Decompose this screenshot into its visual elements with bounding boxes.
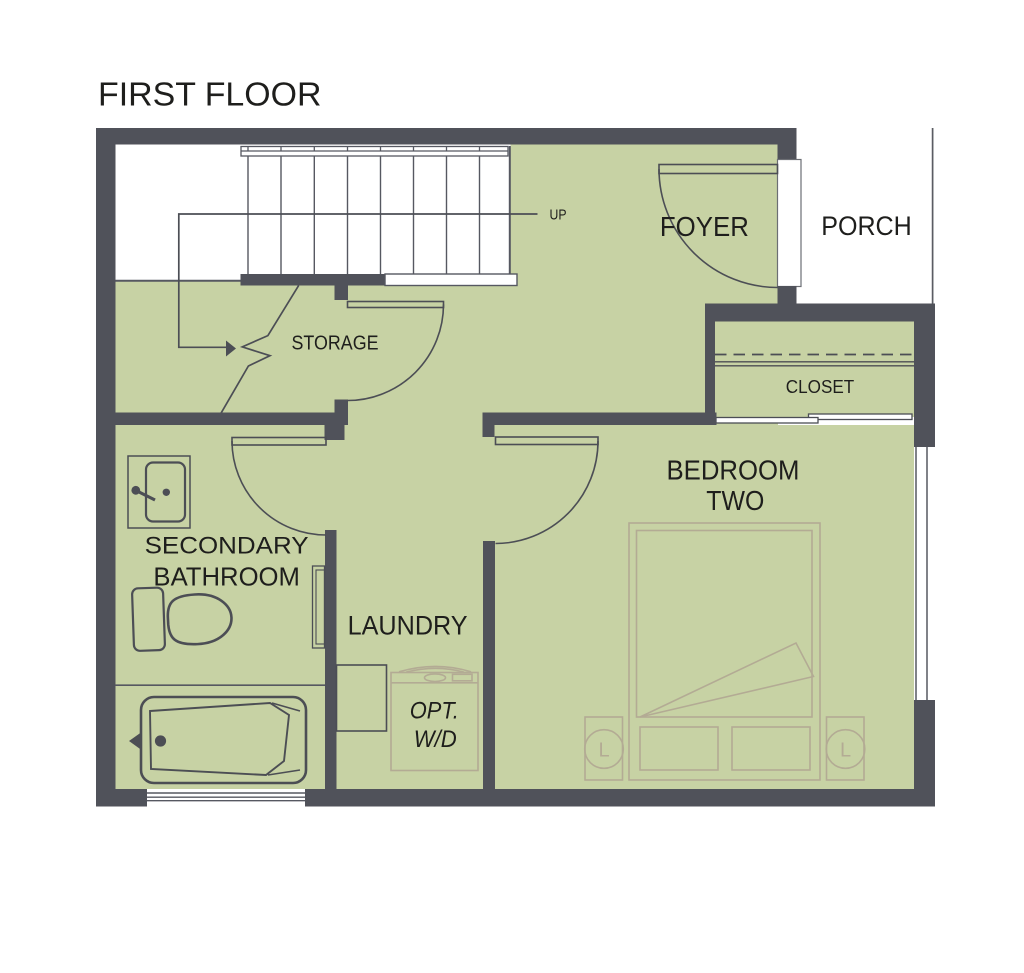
svg-text:L: L — [598, 740, 609, 762]
svg-text:L: L — [840, 740, 851, 762]
svg-text:LAUNDRY: LAUNDRY — [348, 610, 468, 640]
svg-text:STORAGE: STORAGE — [292, 333, 379, 355]
svg-text:BATHROOM: BATHROOM — [153, 564, 300, 592]
svg-text:BEDROOM: BEDROOM — [667, 454, 800, 485]
svg-text:UP: UP — [550, 207, 567, 224]
svg-text:W/D: W/D — [414, 726, 457, 753]
svg-text:CLOSET: CLOSET — [786, 376, 855, 397]
svg-text:OPT.: OPT. — [410, 698, 459, 725]
svg-text:SECONDARY: SECONDARY — [145, 532, 309, 559]
svg-text:FIRST FLOOR: FIRST FLOOR — [98, 76, 322, 113]
svg-text:PORCH: PORCH — [821, 211, 912, 241]
svg-text:FOYER: FOYER — [660, 211, 749, 242]
svg-text:TWO: TWO — [706, 485, 764, 516]
